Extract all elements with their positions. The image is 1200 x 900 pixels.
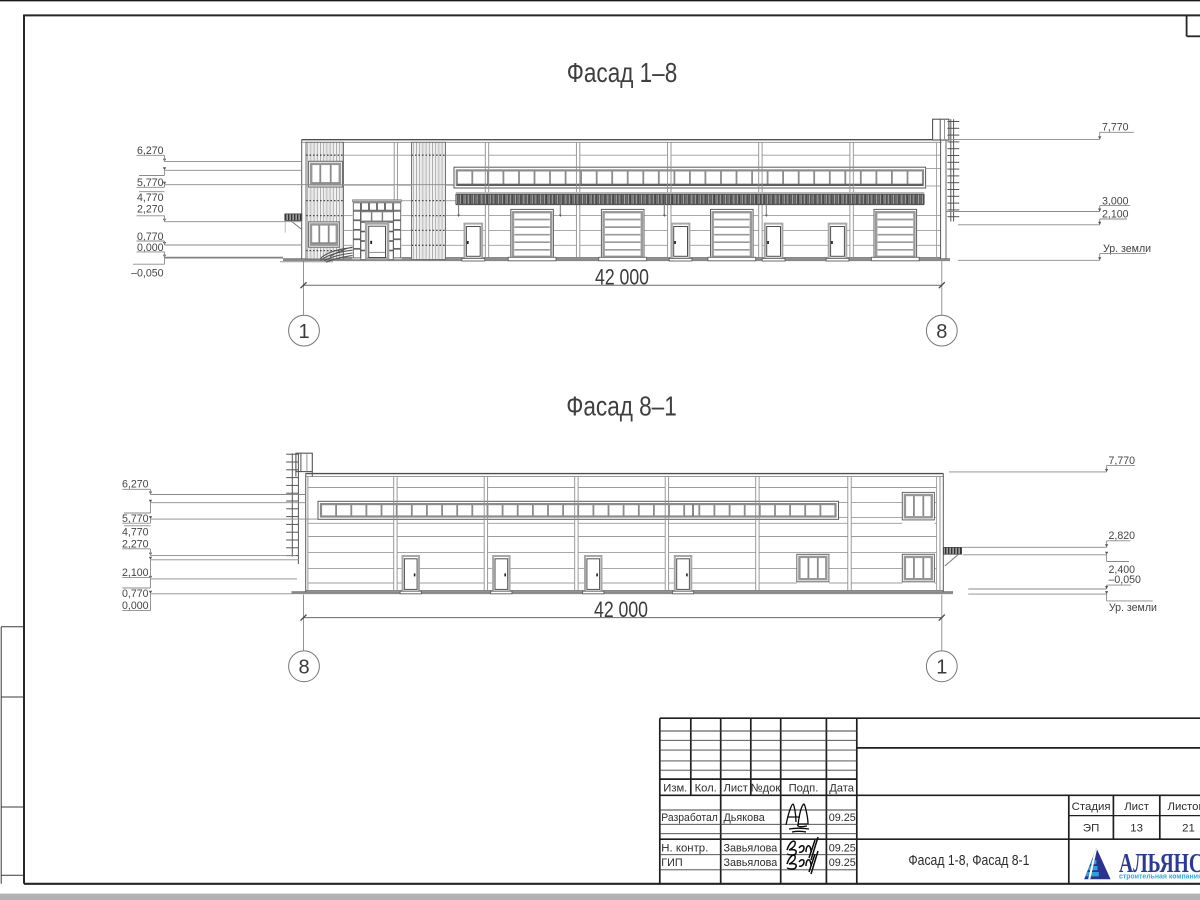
svg-text:13: 13 <box>1130 823 1143 835</box>
svg-text:Лист: Лист <box>724 782 748 794</box>
svg-text:Разработал: Разработал <box>661 812 718 824</box>
svg-text:21: 21 <box>1182 823 1195 835</box>
svg-text:09.25: 09.25 <box>829 812 856 824</box>
svg-text:–0,050: –0,050 <box>131 267 164 279</box>
svg-text:Листов: Листов <box>1167 801 1200 813</box>
svg-text:2,270: 2,270 <box>137 203 164 215</box>
svg-text:строительная компания: строительная компания <box>1119 874 1200 881</box>
svg-text:0,000: 0,000 <box>122 600 149 612</box>
svg-text:09.25: 09.25 <box>829 842 856 854</box>
svg-text:8: 8 <box>298 657 309 679</box>
svg-text:7,770: 7,770 <box>1102 122 1129 134</box>
svg-text:ГИП: ГИП <box>661 857 682 869</box>
svg-text:ЭП: ЭП <box>1083 823 1099 835</box>
svg-text:Кол.: Кол. <box>695 782 717 794</box>
svg-text:Фасад 8–1: Фасад 8–1 <box>566 391 677 422</box>
svg-text:6,270: 6,270 <box>122 479 149 491</box>
svg-text:42 000: 42 000 <box>595 264 649 289</box>
svg-text:1: 1 <box>936 657 947 679</box>
svg-text:09.25: 09.25 <box>829 857 856 869</box>
svg-text:1: 1 <box>298 321 309 343</box>
svg-text:Подп.: Подп. <box>789 782 819 794</box>
svg-text:№док: №док <box>751 782 781 794</box>
svg-text:Изм.: Изм. <box>663 782 687 794</box>
svg-text:2,100: 2,100 <box>122 567 149 579</box>
svg-text:Ур. земли: Ур. земли <box>1109 602 1157 614</box>
svg-text:Фасад 1–8: Фасад 1–8 <box>567 57 678 88</box>
svg-text:Завьялова: Завьялова <box>724 857 778 869</box>
svg-text:0,770: 0,770 <box>122 588 149 600</box>
svg-text:Фасад 1-8, Фасад 8-1: Фасад 1-8, Фасад 8-1 <box>908 853 1029 869</box>
svg-text:4,770: 4,770 <box>137 192 164 204</box>
svg-text:–0,050: –0,050 <box>1109 574 1142 586</box>
svg-text:Н. контр.: Н. контр. <box>661 842 708 854</box>
svg-text:Дьякова: Дьякова <box>724 812 765 824</box>
svg-text:Дата: Дата <box>829 782 855 794</box>
svg-text:8: 8 <box>936 321 947 343</box>
svg-text:Завьялова: Завьялова <box>724 842 778 854</box>
svg-text:42 000: 42 000 <box>594 597 648 622</box>
svg-text:Стадия: Стадия <box>1072 801 1111 813</box>
svg-text:Лист: Лист <box>1124 801 1150 813</box>
svg-text:4,770: 4,770 <box>122 527 149 539</box>
